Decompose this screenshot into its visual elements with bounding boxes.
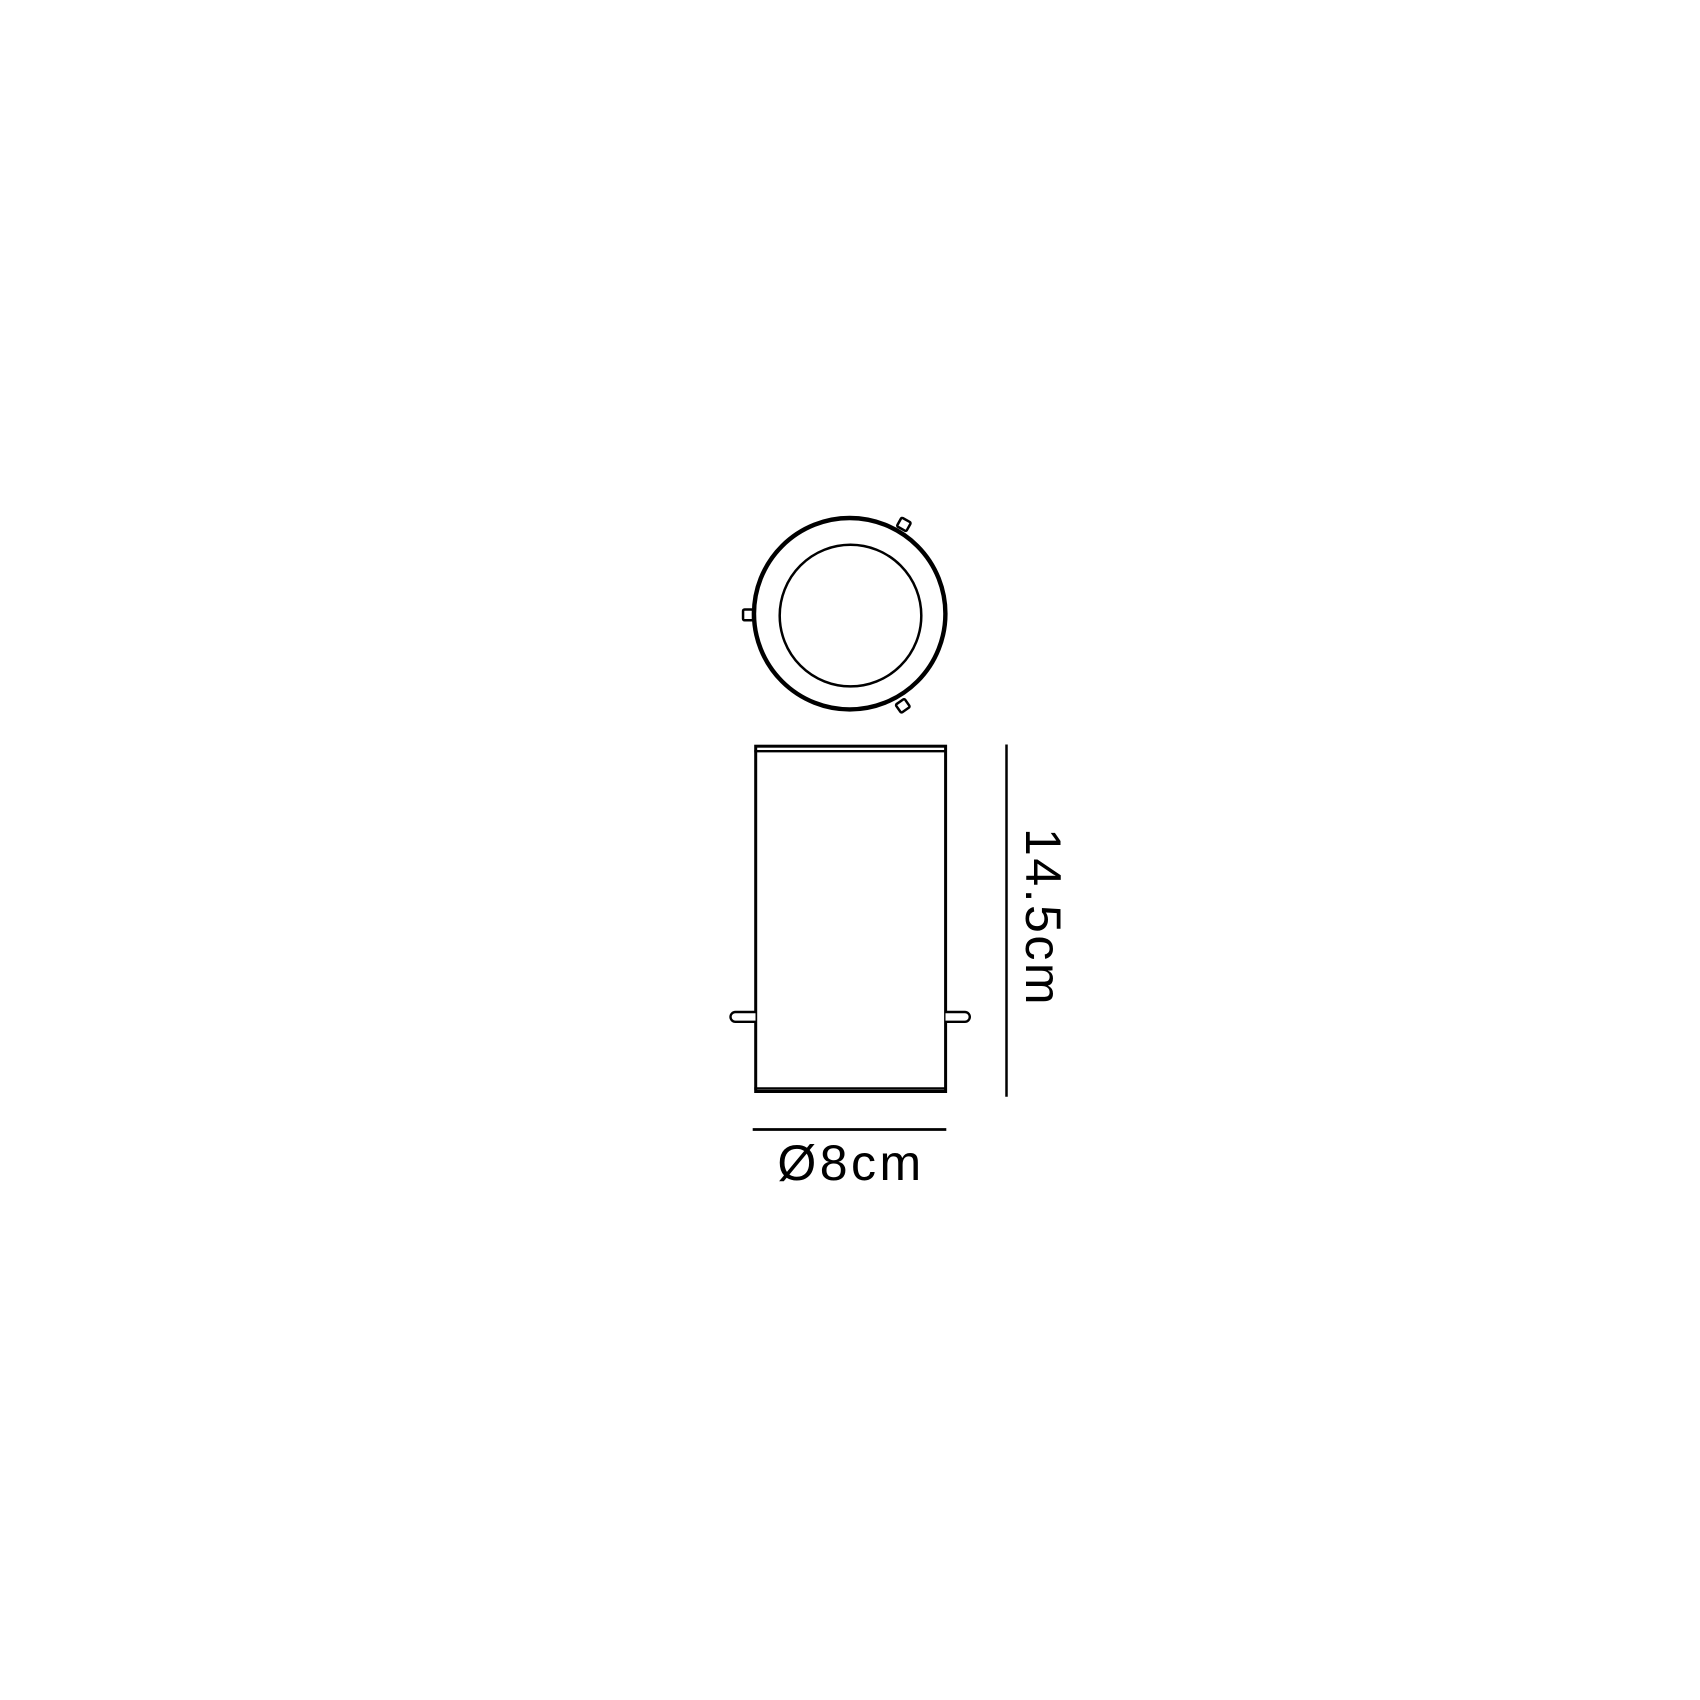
svg-text:14.5cm: 14.5cm [1015,828,1071,1007]
svg-text:Ø8cm: Ø8cm [777,1135,924,1191]
